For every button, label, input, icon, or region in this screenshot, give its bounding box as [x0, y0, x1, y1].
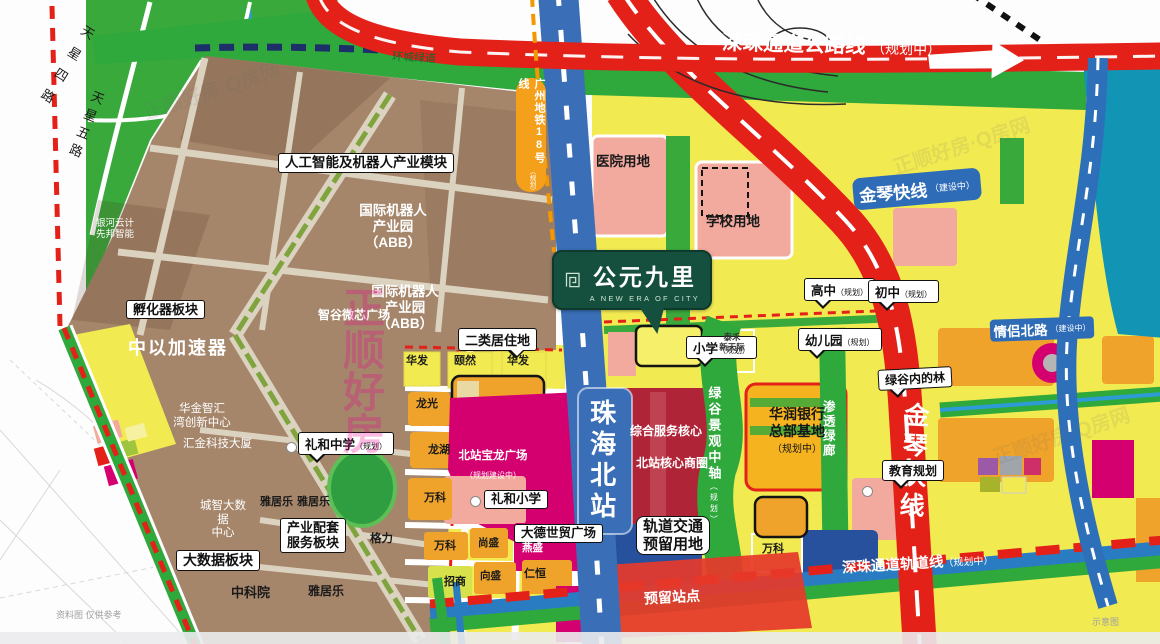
intl-robot-park-label: 国际机器人 产业园（ABB） [350, 203, 436, 251]
education-plan-bubble: 教育规划 [882, 460, 944, 481]
school-land-label: 学校用地 [706, 214, 760, 230]
ai-robot-module-label: 人工智能及机器人产业模块 [278, 153, 454, 173]
logo-mark-icon [564, 263, 581, 297]
landmark-dot-lihe-middle [286, 442, 297, 453]
parcel-renheng: 仁恒 [524, 568, 546, 581]
kindergarten-bubble: 幼儿园（规划） [798, 328, 882, 351]
parcel-yajule-2: 雅居乐 [297, 496, 330, 509]
crbank-hq-label: 华润银行 总部基地 （规划中） [752, 406, 842, 456]
dade-plaza-label: 大德世贸广场 [514, 524, 603, 543]
project-logo: 公元九里 A NEW ERA OF CITY [552, 250, 712, 310]
parcel-longhu: 龙湖 [428, 444, 450, 457]
junior-school-bubble: 初中（规划） [868, 280, 939, 303]
parcel-huafa-2: 华发 [507, 355, 529, 368]
reserved-station-label: 预留站点 [644, 588, 701, 607]
parcel-zhaoshang: 招商 [444, 576, 466, 589]
qinglv-north-label: 情侣北路（建设中） [990, 316, 1095, 342]
metro18-label: 广州地铁18号线（规划） [516, 78, 546, 192]
logo-tagline: A NEW ERA OF CITY [590, 294, 700, 303]
parcel-yansheng: 燕盛 [522, 542, 543, 554]
watermark-big: 正顺好房 [336, 286, 386, 454]
huijin-tower-label: 汇金科技大厦 [183, 438, 252, 452]
parcel-xiangsheng: 向盛 [480, 570, 501, 582]
lihe-primary-label: 礼和小学 [484, 490, 548, 509]
bigdata-block-label: 大数据板块 [176, 550, 260, 571]
parcel-shangsheng: 尚盛 [478, 537, 499, 549]
green-axis-label: 绿谷景观中轴（规划） [706, 386, 721, 526]
hospital-label: 医院用地 [596, 154, 650, 170]
parcel-yiran: 颐然 [454, 355, 476, 368]
par­cel-gree: 格力 [370, 533, 393, 547]
parcel-yajule: 雅居乐 [260, 496, 293, 509]
baolong-plaza-label: 北站宝龙广场 （规划建设中） [452, 446, 534, 484]
parcel-vanke: 万科 [424, 492, 446, 505]
planning-map: 深珠通道公路线 （规划中） 金琴快线（建设中） 广州地铁18号线（规划） 情侣北… [0, 0, 1160, 644]
huajin-center-label: 华金智汇 湾创新中心 [172, 403, 232, 430]
high-school-bubble: 高中（规划） [804, 278, 875, 301]
caption-left: 资料图 仅供参考 [56, 610, 122, 621]
station-label: 珠海北站 [586, 399, 617, 523]
hospital-parcel [592, 136, 668, 236]
galaxy-cloud-label: 银河云计 先邦智能 [96, 218, 134, 240]
parcel-taihe: 泰禾 新天际 [712, 332, 752, 352]
landmark-dot-education [862, 486, 873, 497]
caption-right: 示意图 [1092, 617, 1119, 628]
green-valley-bubble: 绿谷内的林 [878, 366, 953, 391]
greenway-label: 环城绿道 [392, 51, 437, 66]
bottom-strip [0, 632, 1160, 644]
residential2-bubble: 二类居住地 [458, 328, 537, 351]
service-core-label: 综合服务核心 [630, 424, 702, 438]
accelerator-label: 中以加速器 [128, 338, 228, 359]
industry-support-label: 产业配套 服务板块 [280, 518, 346, 553]
parcel-vanke-2: 万科 [434, 540, 456, 553]
landmark-dot-lihe-primary [470, 496, 481, 507]
cas-label: 中科院 [231, 585, 270, 600]
parcel-yajule-3: 雅居乐 [308, 584, 344, 598]
parcel-longguang: 龙光 [416, 398, 438, 411]
parcel-vanke-3: 万科 [762, 543, 784, 556]
bigdata-center-label: 城智大数据 中心 [195, 500, 251, 541]
rail-reserved-label: 轨道交通 预留用地 [636, 516, 710, 555]
logo-title: 公元九里 [593, 258, 697, 292]
map-canvas [0, 0, 1160, 644]
parcel-huafa: 华发 [406, 355, 428, 368]
incubator-label: 孵化器板块 [126, 300, 205, 319]
core-business-label: 北站核心商圈 [636, 456, 708, 470]
